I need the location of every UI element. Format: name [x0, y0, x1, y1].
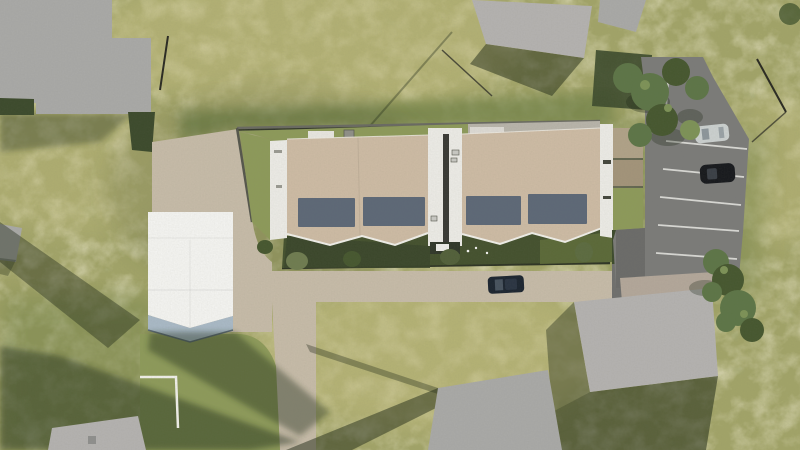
aerial-render	[0, 0, 800, 450]
render-grain	[0, 0, 800, 450]
site-render-canvas	[0, 0, 800, 450]
